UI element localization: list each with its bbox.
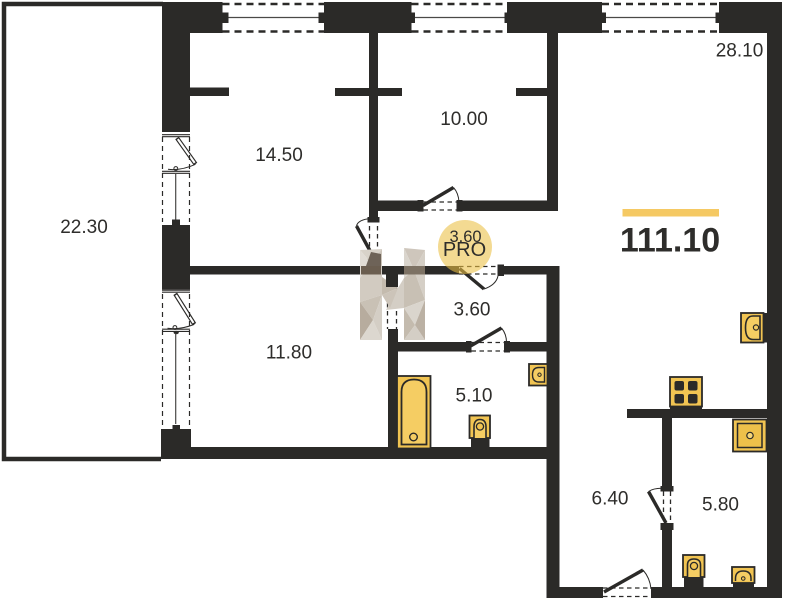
svg-text:28.10: 28.10 — [716, 41, 764, 62]
svg-text:PRO: PRO — [443, 239, 486, 261]
svg-text:22.30: 22.30 — [60, 217, 108, 238]
svg-text:11.80: 11.80 — [266, 343, 312, 364]
svg-text:6.40: 6.40 — [592, 489, 629, 510]
svg-text:111.10: 111.10 — [620, 222, 720, 260]
svg-text:10.00: 10.00 — [440, 109, 488, 130]
svg-text:14.50: 14.50 — [255, 145, 303, 166]
svg-text:5.80: 5.80 — [702, 495, 739, 516]
svg-text:5.10: 5.10 — [456, 386, 493, 407]
svg-text:3.60: 3.60 — [454, 300, 491, 321]
